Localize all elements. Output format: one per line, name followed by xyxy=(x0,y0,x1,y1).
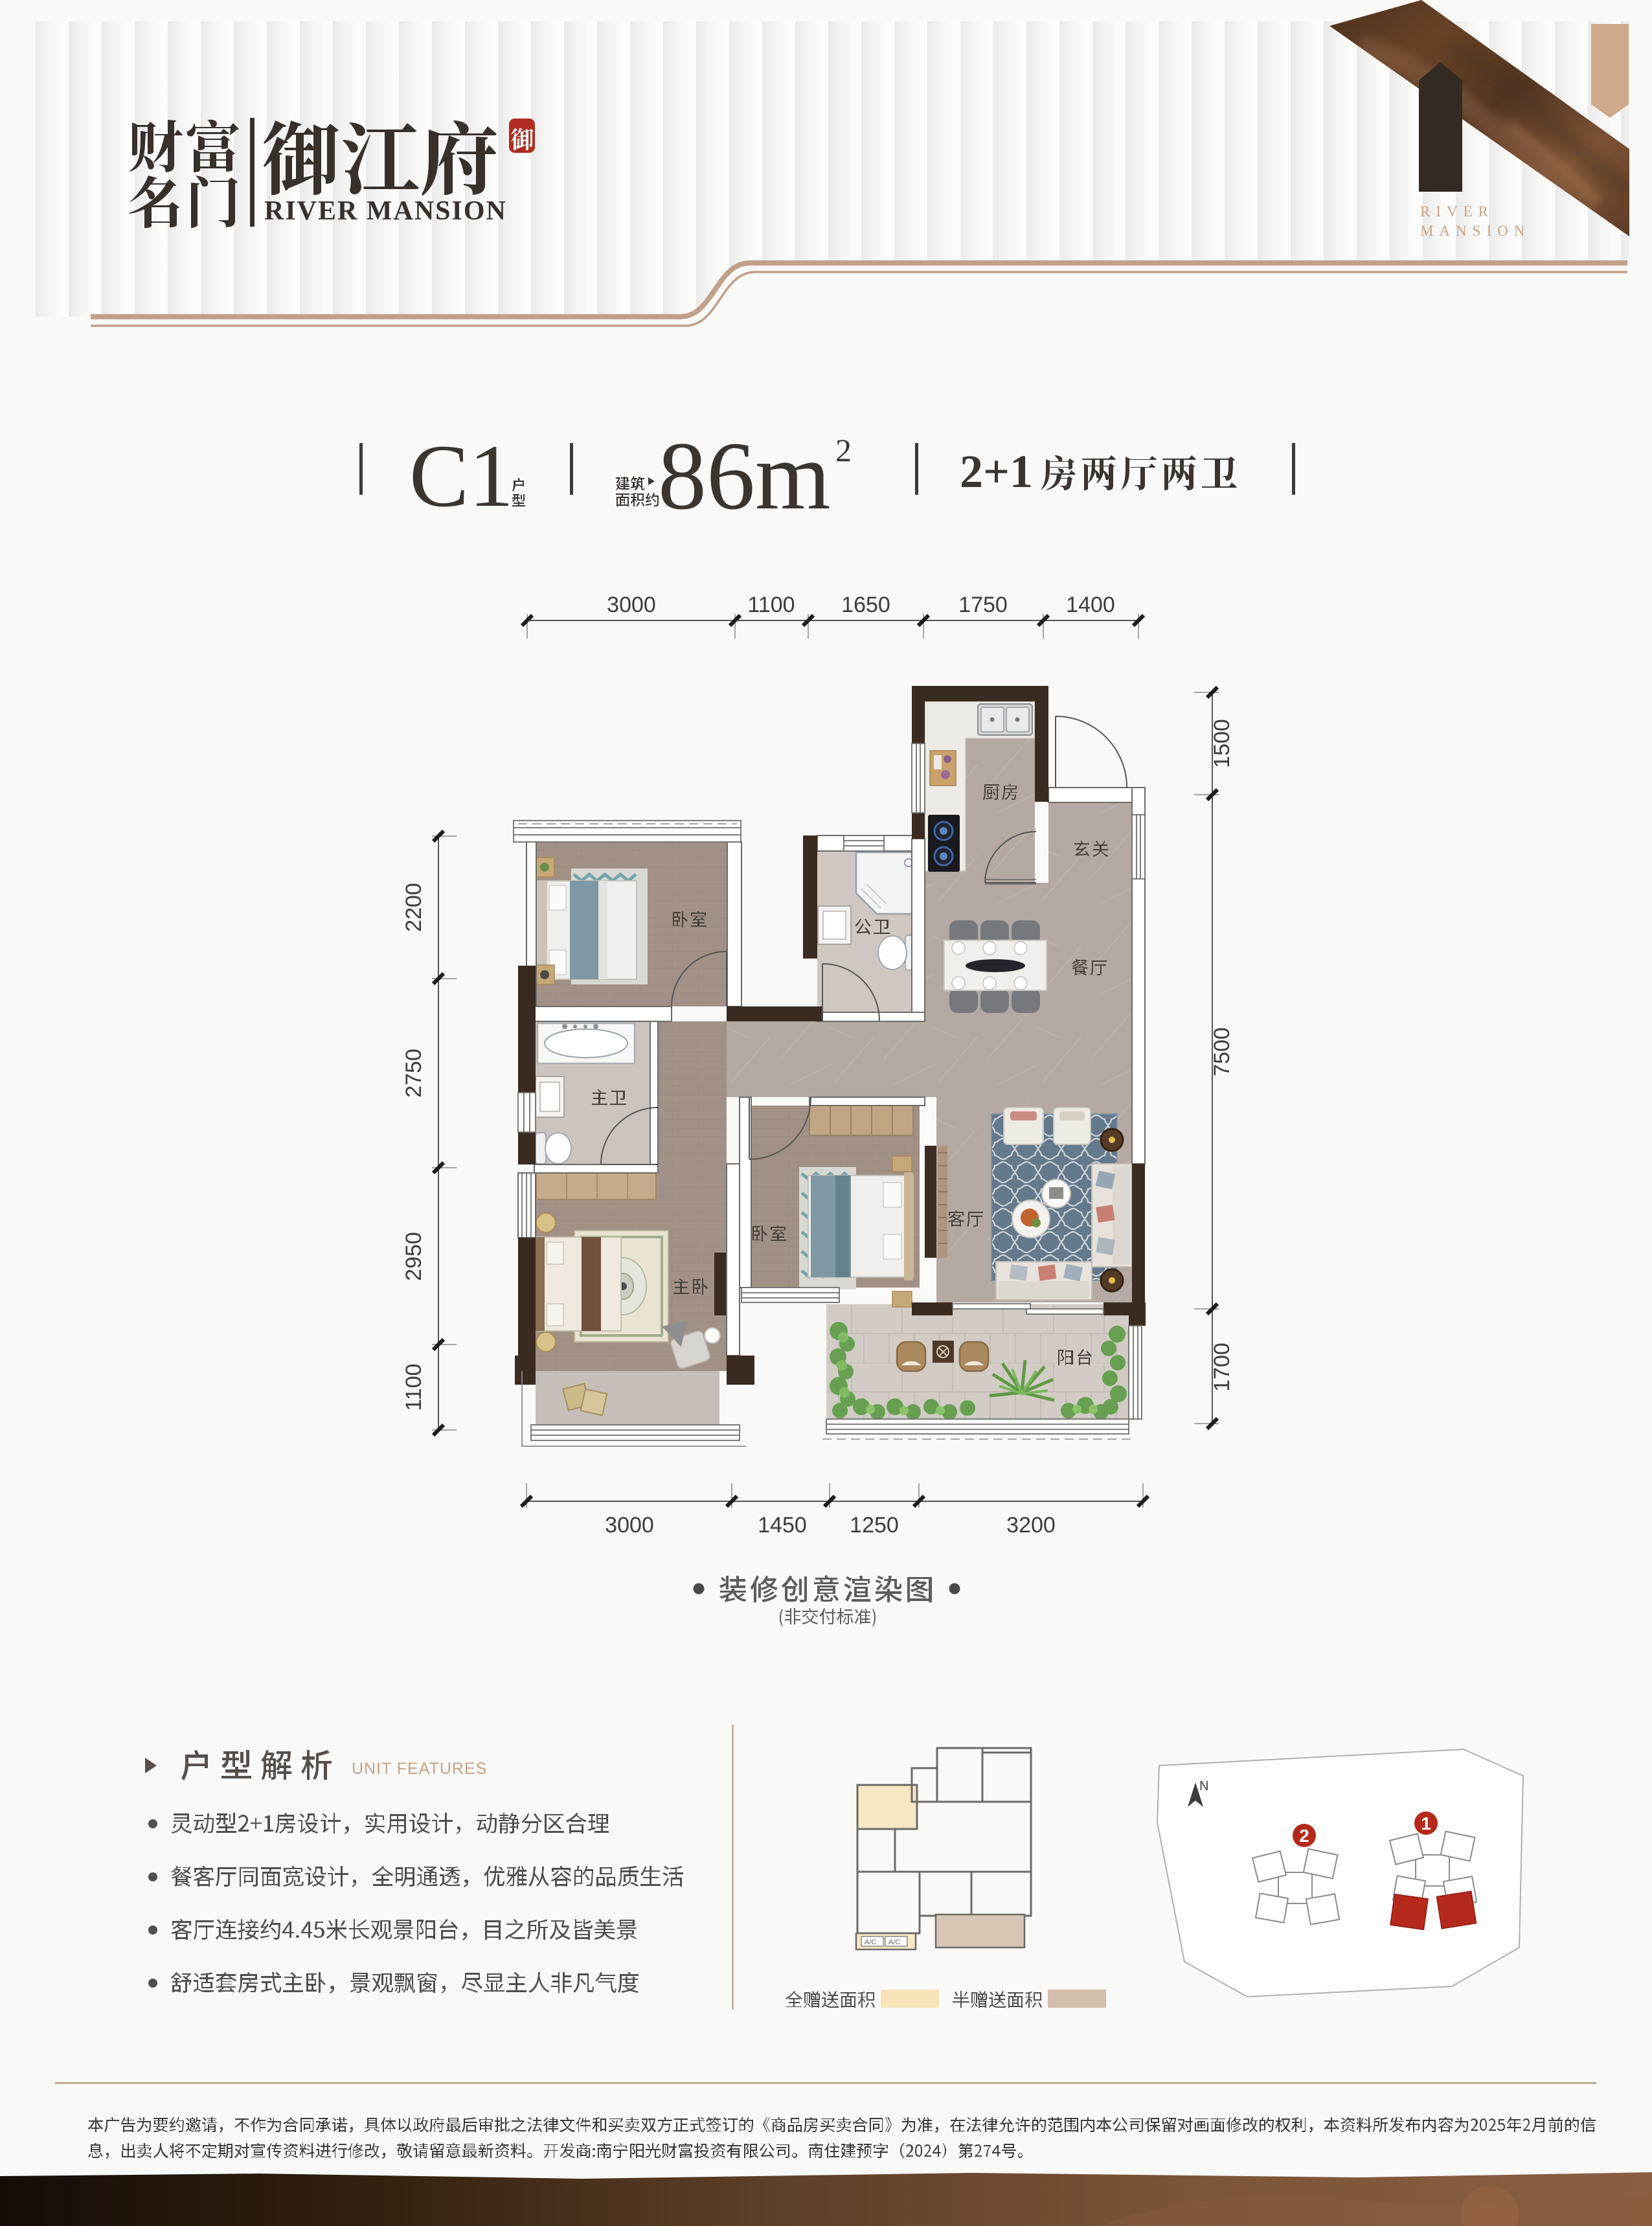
svg-text:1400: 1400 xyxy=(1066,593,1115,617)
svg-text:1250: 1250 xyxy=(850,1513,899,1538)
svg-text:1700: 1700 xyxy=(1210,1343,1234,1392)
svg-text:1750: 1750 xyxy=(958,593,1008,617)
svg-text:RIVER: RIVER xyxy=(1420,203,1494,220)
svg-text:2: 2 xyxy=(1299,1826,1309,1846)
svg-text:3000: 3000 xyxy=(607,593,656,617)
svg-text:1500: 1500 xyxy=(1210,719,1234,768)
svg-text:2200: 2200 xyxy=(402,883,426,932)
svg-text:C1: C1 xyxy=(409,426,514,525)
svg-text:UNIT FEATURES: UNIT FEATURES xyxy=(352,1760,487,1778)
svg-text:2+1: 2+1 xyxy=(960,446,1033,497)
svg-text:2950: 2950 xyxy=(402,1232,426,1281)
svg-text:MANSION: MANSION xyxy=(1420,223,1530,239)
svg-text:A/C: A/C xyxy=(888,1938,900,1946)
svg-text:1: 1 xyxy=(1421,1813,1431,1834)
svg-text:N: N xyxy=(1199,1779,1208,1793)
svg-text:1650: 1650 xyxy=(841,593,890,617)
svg-text:2750: 2750 xyxy=(402,1049,426,1098)
svg-text:RIVER MANSION: RIVER MANSION xyxy=(264,196,507,226)
svg-text:7500: 7500 xyxy=(1210,1027,1234,1076)
svg-text:2: 2 xyxy=(835,432,852,468)
svg-text:1450: 1450 xyxy=(758,1513,807,1538)
svg-text:3000: 3000 xyxy=(605,1513,654,1538)
svg-text:A/C: A/C xyxy=(865,1938,876,1946)
svg-text:86m: 86m xyxy=(658,422,831,530)
svg-text:3200: 3200 xyxy=(1006,1513,1056,1538)
svg-text:1100: 1100 xyxy=(402,1363,426,1411)
svg-text:1100: 1100 xyxy=(747,593,795,617)
